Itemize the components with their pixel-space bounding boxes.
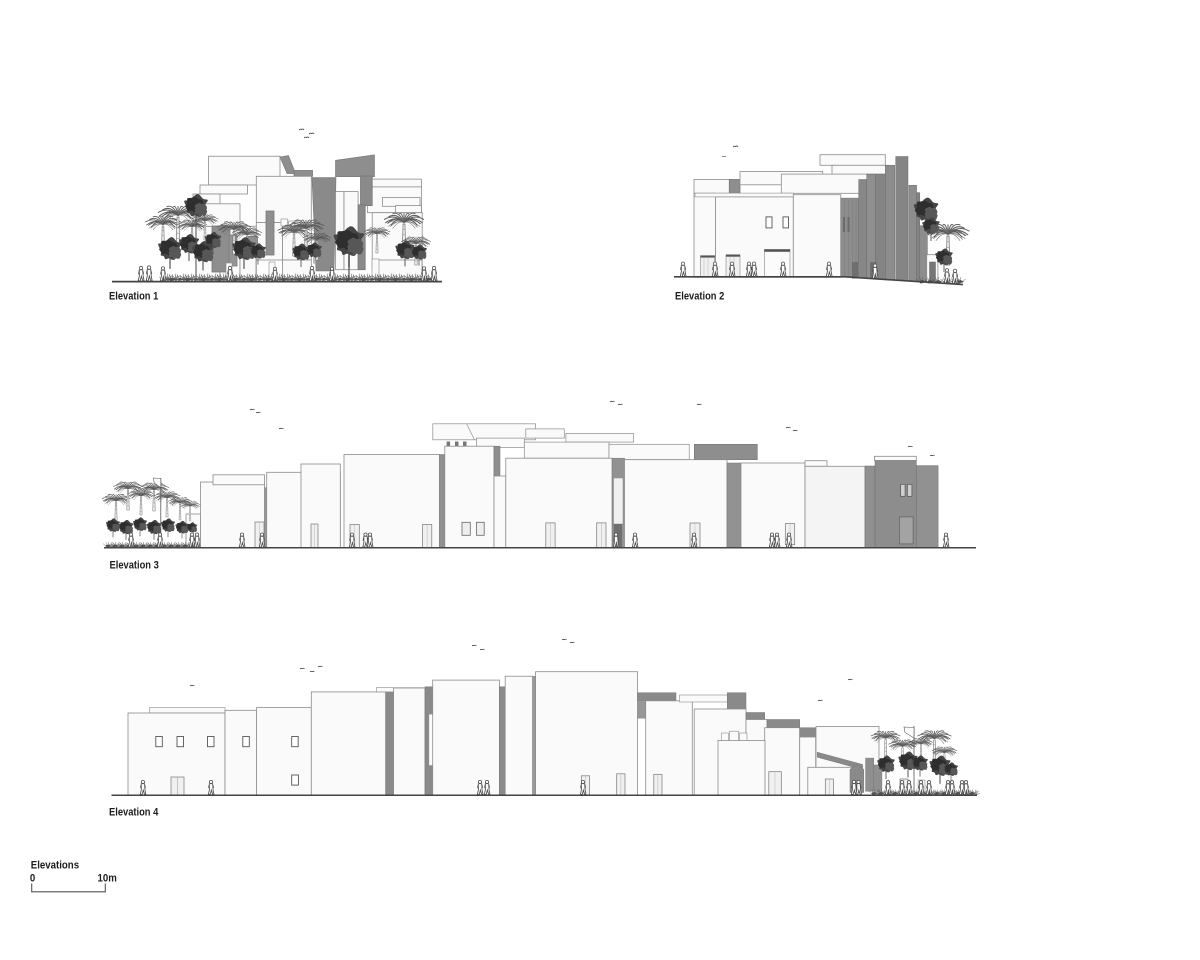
svg-text:10m: 10m [98,872,117,885]
svg-text:Elevation 3: Elevation 3 [110,560,160,572]
svg-text:Elevation 1: Elevation 1 [109,291,159,303]
svg-text:0: 0 [30,872,35,885]
svg-text:Elevation 2: Elevation 2 [675,291,725,303]
svg-text:Elevation 4: Elevation 4 [109,807,159,819]
svg-text:Elevations: Elevations [31,859,79,872]
